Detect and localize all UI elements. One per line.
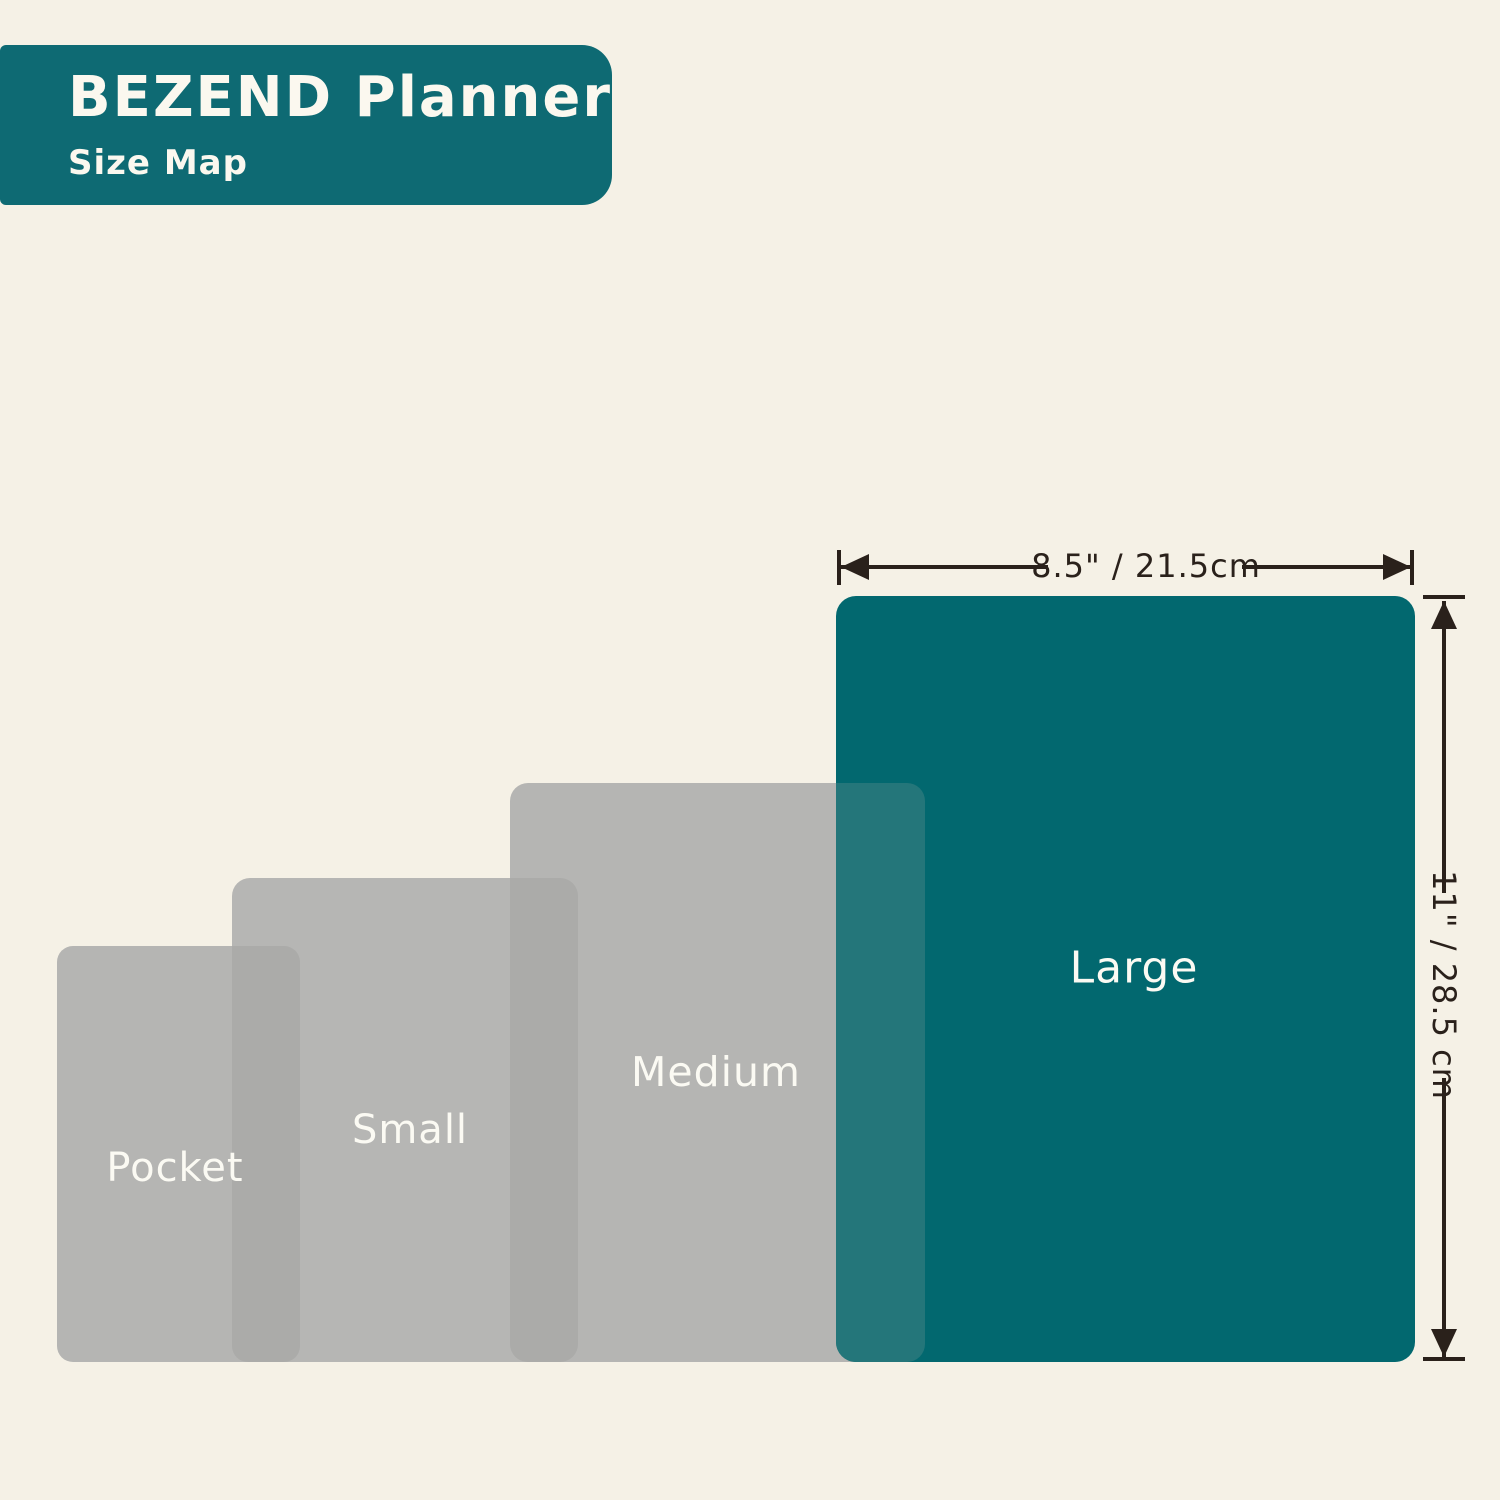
small-medium-overlap-band xyxy=(510,878,578,1362)
size-map-subtitle: Size Map xyxy=(68,143,612,183)
height-dimension-label: 11" / 28.5 cm xyxy=(1425,870,1463,1100)
large-label: Large xyxy=(1070,943,1199,994)
small-label: Small xyxy=(352,1107,468,1153)
width-dim-line-left xyxy=(841,565,1048,569)
height-dim-arrowhead-down-icon xyxy=(1431,1329,1457,1357)
height-dim-end-bar-bottom xyxy=(1423,1357,1465,1361)
width-dim-end-bar-right xyxy=(1410,550,1414,585)
height-dim-end-bar-top xyxy=(1423,595,1465,599)
header-card: BEZEND Planner Size Map xyxy=(0,45,612,205)
height-dim-line-top xyxy=(1442,601,1446,893)
height-dim-line-bottom xyxy=(1442,1078,1446,1358)
brand-title: BEZEND Planner xyxy=(68,67,612,129)
medium-large-overlap-band xyxy=(836,783,925,1362)
width-dimension-label: 8.5" / 21.5cm xyxy=(1031,547,1261,585)
medium-label: Medium xyxy=(631,1048,801,1096)
width-dim-arrowhead-right-icon xyxy=(1383,554,1411,580)
size-map-infographic: BEZEND Planner Size Map Pocket Small Med… xyxy=(0,0,1500,1500)
pocket-label: Pocket xyxy=(106,1145,243,1191)
